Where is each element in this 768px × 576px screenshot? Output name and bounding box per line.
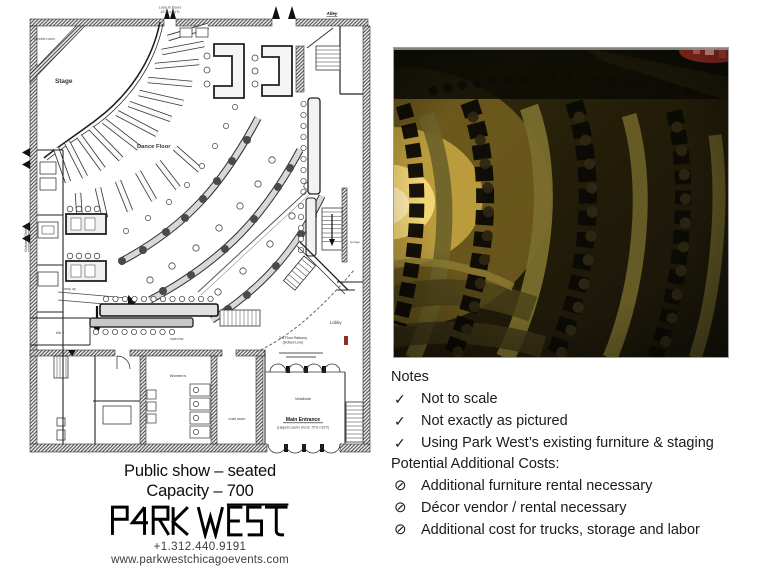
- stage-label: Stage: [55, 78, 73, 85]
- balcony-label: 3rd Floor Balcony: [279, 336, 307, 340]
- prohibited-icon: ⊘: [391, 497, 421, 519]
- svg-text:(Largest Load In Doors: 72"w x: (Largest Load In Doors: 72"w x 81"h): [277, 426, 329, 430]
- note-item: ✓ Not exactly as pictured: [391, 410, 763, 432]
- check-icon: ✓: [391, 432, 421, 454]
- banquet-rows: [56, 26, 208, 224]
- coat-room-label: coat room: [229, 417, 246, 421]
- caption-line1: Public show – seated: [22, 461, 378, 481]
- brand-phone: +1.312.440.9191: [22, 541, 378, 553]
- check-icon: ✓: [391, 410, 421, 432]
- brand-block: PARK WEST +1.312.440.9191 www.parkwestch…: [22, 503, 378, 566]
- costs-heading: Potential Additional Costs:: [391, 454, 763, 475]
- cost-item: ⊘ Additional cost for trucks, storage an…: [391, 519, 763, 541]
- note-item: ✓ Using Park West’s existing furniture &…: [391, 432, 763, 454]
- main-entrance-label: Main Entrance: [286, 417, 320, 423]
- brand-website: www.parkwestchicagoevents.com: [22, 554, 378, 566]
- street-label: Orleans Street: [23, 225, 28, 252]
- dance-floor-label: Dance Floor: [137, 144, 171, 150]
- floor-plan: Load In Doors 42"w x 81"h Alley Orleans …: [22, 0, 378, 480]
- stairs-top-right: [316, 46, 340, 70]
- note-item: ✓ Not to scale: [391, 388, 763, 410]
- cost-item: ⊘ Additional furniture rental necessary: [391, 475, 763, 497]
- note-text: Using Park West’s existing furniture & s…: [421, 432, 714, 454]
- svg-text:(Dotted Line): (Dotted Line): [283, 341, 304, 345]
- notes-heading: Notes: [391, 367, 763, 388]
- load-in-doors-label: Load In Doors: [159, 6, 182, 10]
- check-icon: ✓: [391, 388, 421, 410]
- main-bar-label: main bar: [170, 337, 184, 341]
- electric-room-label: electric room: [34, 37, 55, 41]
- cost-text: Décor vendor / rental necessary: [421, 497, 627, 519]
- mix-booth-label: Mix 2: [56, 331, 64, 335]
- prohibited-icon: ⊘: [391, 475, 421, 497]
- caption-line2: Capacity – 700: [22, 481, 378, 501]
- plan-caption: Public show – seated Capacity – 700: [22, 461, 378, 501]
- storage-label: storage: [350, 240, 360, 244]
- cost-text: Additional cost for trucks, storage and …: [421, 519, 700, 541]
- prohibited-icon: ⊘: [391, 519, 421, 541]
- lobby-label: Lobby: [330, 320, 342, 325]
- vestibule-label: Vestibule: [295, 396, 312, 401]
- left-booths: [66, 206, 106, 281]
- cost-text: Additional furniture rental necessary: [421, 475, 652, 497]
- slide-canvas: Load In Doors 42"w x 81"h Alley Orleans …: [0, 0, 768, 576]
- fire-equipment-mark: [344, 336, 348, 345]
- cost-item: ⊘ Décor vendor / rental necessary: [391, 497, 763, 519]
- upper-right-booths: [180, 26, 363, 98]
- svg-text:42"w x 81"h: 42"w x 81"h: [161, 10, 180, 14]
- notes-panel: Notes ✓ Not to scale ✓ Not exactly as pi…: [391, 367, 763, 541]
- womens-label: Women's: [170, 373, 186, 378]
- ramp-label: ramp up: [63, 287, 76, 291]
- park-west-logo: PARK WEST: [109, 503, 291, 539]
- venue-photo: [393, 47, 729, 358]
- note-text: Not to scale: [421, 388, 498, 410]
- alley-label: Alley: [326, 11, 338, 16]
- note-text: Not exactly as pictured: [421, 410, 568, 432]
- back-of-house: [147, 350, 363, 453]
- booth-tables: [118, 136, 317, 313]
